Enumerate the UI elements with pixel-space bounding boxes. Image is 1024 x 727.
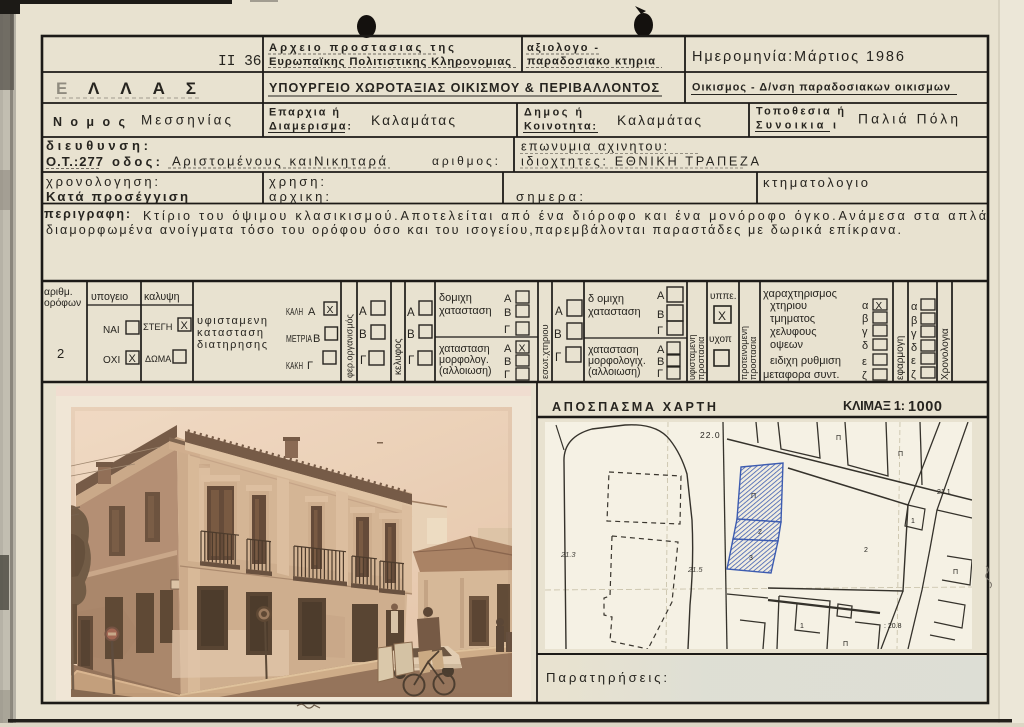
svg-text:(αλλοιωση): (αλλοιωση) <box>588 366 641 378</box>
svg-text:3: 3 <box>749 555 753 562</box>
svg-text:Γ: Γ <box>504 369 510 381</box>
svg-text:δ: δ <box>862 340 868 352</box>
svg-text:Α: Α <box>657 290 665 302</box>
svg-text:χατασταση: χατασταση <box>439 305 492 317</box>
svg-text:Ευρωπαϊκης Πολιτιστικης Κληρον: Ευρωπαϊκης Πολιτιστικης Κληρονομιας <box>269 56 511 68</box>
svg-text:χτηριου: χτηριου <box>770 300 807 312</box>
svg-text:2: 2 <box>57 346 64 361</box>
svg-text:1000: 1000 <box>908 399 942 415</box>
svg-text:ΚΑΛΗ: ΚΑΛΗ <box>286 307 303 318</box>
svg-text:ζ: ζ <box>911 369 916 381</box>
svg-text:β: β <box>862 313 868 325</box>
svg-text:Γ: Γ <box>504 324 510 336</box>
svg-text:υφισταμενη: υφισταμενη <box>197 315 267 327</box>
svg-text:Χ: Χ <box>876 301 883 312</box>
svg-text:ΝΑΙ: ΝΑΙ <box>103 325 120 336</box>
svg-text:Α: Α <box>504 343 512 355</box>
svg-text:εσωτ.χτηριου: εσωτ.χτηριου <box>540 324 550 379</box>
svg-text:μεταφορα συντ.: μεταφορα συντ. <box>763 369 839 381</box>
svg-text:ιδιοχτητες: ΕΘΝΙΚΗ ΤΡΑΠΕΖΑ: ιδιοχτητες: ΕΘΝΙΚΗ ΤΡΑΠΕΖΑ <box>521 154 759 169</box>
svg-text:Γ: Γ <box>555 352 562 364</box>
svg-text:Οικισμος - Δ/νση παραδοσιακω: Οικισμος - Δ/νση παραδοσιακων οικισμων <box>692 82 950 94</box>
svg-text:κατασταση: κατασταση <box>197 327 263 339</box>
svg-text:Β: Β <box>554 329 562 341</box>
svg-text:τμηματος: τμηματος <box>770 313 815 325</box>
svg-text:ΑΠΟΣΠΑΣΜΑ ΧΑΡΤΗ: ΑΠΟΣΠΑΣΜΑ ΧΑΡΤΗ <box>552 400 716 414</box>
svg-text:υππε.: υππε. <box>710 291 737 302</box>
svg-text:Β: Β <box>504 356 511 368</box>
svg-text:Α: Α <box>407 307 415 319</box>
svg-text:Π: Π <box>898 451 903 458</box>
svg-text:δομιχη: δομιχη <box>439 292 472 304</box>
svg-text:Α: Α <box>555 306 563 318</box>
svg-text:χατασταση: χατασταση <box>588 306 641 318</box>
svg-text:Χ: Χ <box>327 304 334 316</box>
svg-text:Χρονολογια: Χρονολογια <box>940 328 951 380</box>
svg-text:Β: Β <box>504 307 511 319</box>
svg-text:Γ: Γ <box>360 355 367 367</box>
svg-text:Γ: Γ <box>657 325 663 337</box>
svg-text:ζ: ζ <box>862 370 867 382</box>
svg-text:γ: γ <box>911 328 917 340</box>
svg-text:Β: Β <box>313 333 320 345</box>
svg-text:Α: Α <box>504 293 512 305</box>
svg-text:Β: Β <box>657 309 664 321</box>
svg-text:Χ: Χ <box>181 320 189 332</box>
svg-text:Α: Α <box>359 306 367 318</box>
svg-text:Αριστομένους καιΝικηταρά: Αριστομένους καιΝικηταρά <box>172 154 386 169</box>
svg-text:Π: Π <box>953 569 958 576</box>
svg-text:2: 2 <box>758 529 762 536</box>
svg-text:ΣΤΕΓΗ: ΣΤΕΓΗ <box>143 322 172 332</box>
svg-text:εφαρμογη: εφαρμογη <box>895 336 906 380</box>
svg-text:κελυφος: κελυφος <box>393 338 404 375</box>
svg-text:α: α <box>862 300 869 312</box>
svg-text:παραδοσιακο κτηρια: παραδοσιακο κτηρια <box>527 56 655 68</box>
svg-text:ε: ε <box>862 356 867 368</box>
svg-text:δ ομιχη: δ ομιχη <box>588 293 624 305</box>
svg-text:Α: Α <box>657 344 665 356</box>
svg-text:Ημερομηνία:Μάρτιος 1986: Ημερομηνία:Μάρτιος 1986 <box>692 49 904 65</box>
svg-text:προστασια: προστασια <box>748 337 758 380</box>
svg-text:Π: Π <box>751 493 756 500</box>
svg-text:ορόφων: ορόφων <box>44 297 81 309</box>
svg-text:β: β <box>911 315 917 327</box>
svg-text:Διαμερισμα:: Διαμερισμα: <box>269 121 351 133</box>
svg-text:διαμορφωμένα ανοίγματα τόσο το: διαμορφωμένα ανοίγματα τόσο του ορόφου ό… <box>46 223 901 237</box>
svg-text:ΚΑΚΗ: ΚΑΚΗ <box>286 361 303 372</box>
svg-text:χαραχτηρισμος: χαραχτηρισμος <box>763 288 837 300</box>
svg-text:Καλαμάτας: Καλαμάτας <box>371 113 455 128</box>
svg-text:ε: ε <box>911 355 916 367</box>
svg-text:II 36: II 36 <box>218 54 262 70</box>
svg-text:χελυφους: χελυφους <box>770 326 817 338</box>
svg-text:21.3: 21.3 <box>560 550 576 559</box>
svg-text:υπογειο: υπογειο <box>91 291 128 303</box>
svg-text:: 20.8: : 20.8 <box>884 623 902 630</box>
svg-text:γ: γ <box>862 326 868 338</box>
svg-text:Α: Α <box>308 306 316 318</box>
svg-text:ΚΛΙΜΑΞ 1:: ΚΛΙΜΑΞ 1: <box>843 398 905 413</box>
svg-text:1: 1 <box>800 623 804 630</box>
svg-text:δ: δ <box>911 342 917 354</box>
svg-text:ΟΧΙ: ΟΧΙ <box>103 355 120 366</box>
svg-text:Β: Β <box>359 329 367 341</box>
svg-text:(αλλοιωση): (αλλοιωση) <box>439 365 492 377</box>
svg-text:Κοινοτητα:: Κοινοτητα: <box>524 121 596 133</box>
svg-text:Π: Π <box>836 435 841 442</box>
svg-text:Χ: Χ <box>129 353 137 365</box>
svg-text:επωνυμια αχινητου:: επωνυμια αχινητου: <box>521 139 667 154</box>
svg-text:Γ: Γ <box>307 360 313 372</box>
svg-text:Π: Π <box>843 641 848 648</box>
svg-text:2: 2 <box>864 547 868 554</box>
svg-text:ΥΠΟΥΡΓΕΙΟ ΧΩΡΟΤΑΞΙΑΣ ΟΙΚΙΣΜΟΥ: ΥΠΟΥΡΓΕΙΟ ΧΩΡΟΤΑΞΙΑΣ ΟΙΚΙΣΜΟΥ & ΠΕΡΙΒΑΛΛ… <box>269 81 659 95</box>
svg-text:Γ: Γ <box>408 355 415 367</box>
svg-text:οψεων: οψεων <box>770 339 803 351</box>
svg-text:Καλαμάτας: Καλαμάτας <box>617 113 701 128</box>
svg-text:Μεσσηνίας: Μεσσηνίας <box>141 113 231 128</box>
svg-text:φερ.οργανισμός: φερ.οργανισμός <box>345 313 355 378</box>
svg-text:Γ: Γ <box>657 368 663 380</box>
svg-text:υχοπ: υχοπ <box>709 334 732 345</box>
svg-text:1: 1 <box>911 518 915 525</box>
svg-text:περιγραφη:: περιγραφη: <box>44 207 130 221</box>
svg-text:ειδιχη ρυθμιση: ειδιχη ρυθμιση <box>770 355 841 367</box>
svg-text:Β: Β <box>407 329 415 341</box>
svg-text:προστασια: προστασια <box>696 337 706 380</box>
svg-text:ΔΩΜΑ: ΔΩΜΑ <box>145 354 171 364</box>
svg-text:22.0: 22.0 <box>700 430 721 440</box>
svg-text:Ε: Ε <box>56 79 78 98</box>
svg-text:Β: Β <box>657 356 664 368</box>
svg-text:Χ: Χ <box>519 343 526 355</box>
svg-text:Ο.Τ.:277: Ο.Τ.:277 <box>46 154 103 169</box>
svg-text:ΜΕΤΡΙΑ: ΜΕΤΡΙΑ <box>286 334 312 345</box>
svg-text:αριθμ.: αριθμ. <box>44 287 73 298</box>
svg-text:21.5: 21.5 <box>687 565 703 574</box>
svg-text:α: α <box>911 301 918 313</box>
svg-text:Χ: Χ <box>718 309 726 323</box>
svg-text:καλυψη: καλυψη <box>144 291 180 303</box>
